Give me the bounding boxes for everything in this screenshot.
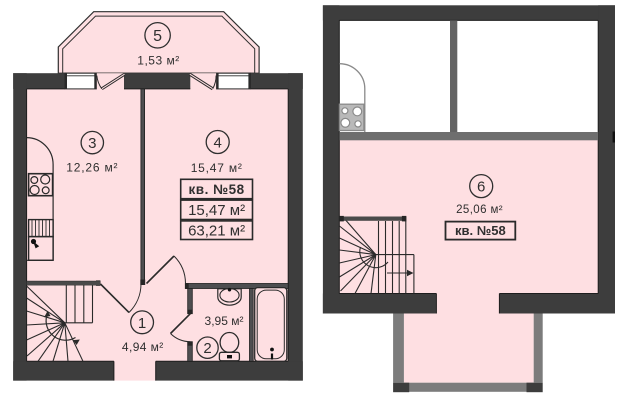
svg-text:63,21 м²: 63,21 м² (188, 223, 245, 240)
svg-text:12,26 м²: 12,26 м² (66, 161, 118, 175)
svg-text:3: 3 (88, 135, 96, 152)
svg-text:2: 2 (203, 340, 211, 357)
svg-text:4: 4 (214, 135, 222, 152)
svg-text:15,47 м²: 15,47 м² (188, 202, 245, 219)
svg-text:1: 1 (138, 315, 146, 332)
svg-text:25,06 м²: 25,06 м² (456, 204, 503, 216)
svg-text:5: 5 (153, 28, 162, 45)
svg-text:6: 6 (477, 179, 485, 196)
svg-text:1,53 м²: 1,53 м² (137, 54, 179, 68)
svg-text:кв. №58: кв. №58 (189, 182, 245, 197)
svg-text:15,47 м²: 15,47 м² (191, 161, 243, 175)
svg-text:3,95 м²: 3,95 м² (205, 314, 244, 328)
svg-text:4,94 м²: 4,94 м² (122, 340, 164, 354)
svg-text:кв. №58: кв. №58 (455, 223, 506, 238)
